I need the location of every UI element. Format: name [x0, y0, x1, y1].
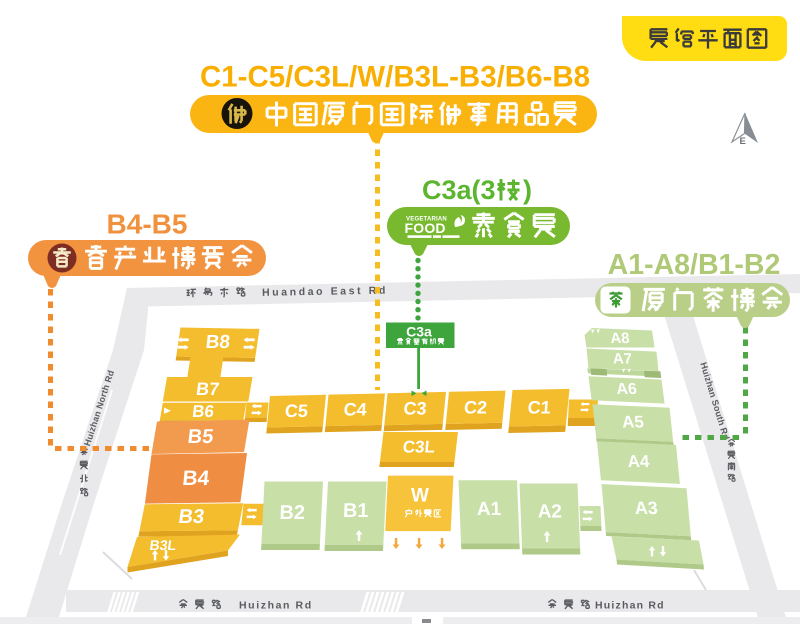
svg-text:A2: A2: [537, 502, 562, 523]
svg-text:W: W: [411, 486, 429, 507]
svg-text:B6: B6: [191, 402, 215, 421]
svg-text:A7: A7: [612, 350, 632, 367]
svg-text:B5: B5: [186, 426, 214, 448]
svg-text:C3a: C3a: [406, 324, 432, 340]
svg-text:B2: B2: [279, 502, 305, 524]
svg-text:Huizhan Rd: Huizhan Rd: [239, 600, 313, 612]
svg-text:FOOD: FOOD: [405, 220, 446, 236]
svg-text:C1: C1: [527, 398, 551, 418]
svg-text:A6: A6: [616, 380, 638, 398]
svg-text:Huizhan Rd: Huizhan Rd: [595, 600, 665, 612]
svg-text:C1-C5/C3L/W/B3L-B3/B6-B8: C1-C5/C3L/W/B3L-B3/B6-B8: [200, 61, 590, 94]
svg-text:C3: C3: [403, 399, 427, 419]
svg-text:C3L: C3L: [402, 438, 436, 457]
svg-text:B8: B8: [205, 332, 231, 353]
svg-text:C5: C5: [284, 401, 308, 421]
svg-text:B3: B3: [177, 506, 206, 528]
svg-text:A8: A8: [610, 330, 630, 347]
svg-text:B4: B4: [181, 467, 210, 490]
svg-text:C4: C4: [343, 400, 367, 420]
svg-text:B7: B7: [195, 379, 220, 399]
svg-text:A1: A1: [477, 499, 502, 520]
svg-text:B3L: B3L: [149, 537, 178, 553]
svg-text:Huandao East Rd: Huandao East Rd: [262, 285, 388, 299]
svg-text:A3: A3: [634, 498, 658, 518]
svg-text:): ): [523, 175, 532, 205]
svg-text:A4: A4: [627, 452, 651, 471]
svg-text:A1-A8/B1-B2: A1-A8/B1-B2: [608, 249, 781, 281]
svg-text:E: E: [740, 136, 746, 147]
svg-text:C2: C2: [463, 397, 487, 417]
svg-text:B4-B5: B4-B5: [107, 209, 188, 240]
svg-text:C3a(3: C3a(3: [422, 175, 496, 205]
svg-text:A5: A5: [621, 413, 644, 432]
svg-text:B1: B1: [343, 500, 369, 522]
